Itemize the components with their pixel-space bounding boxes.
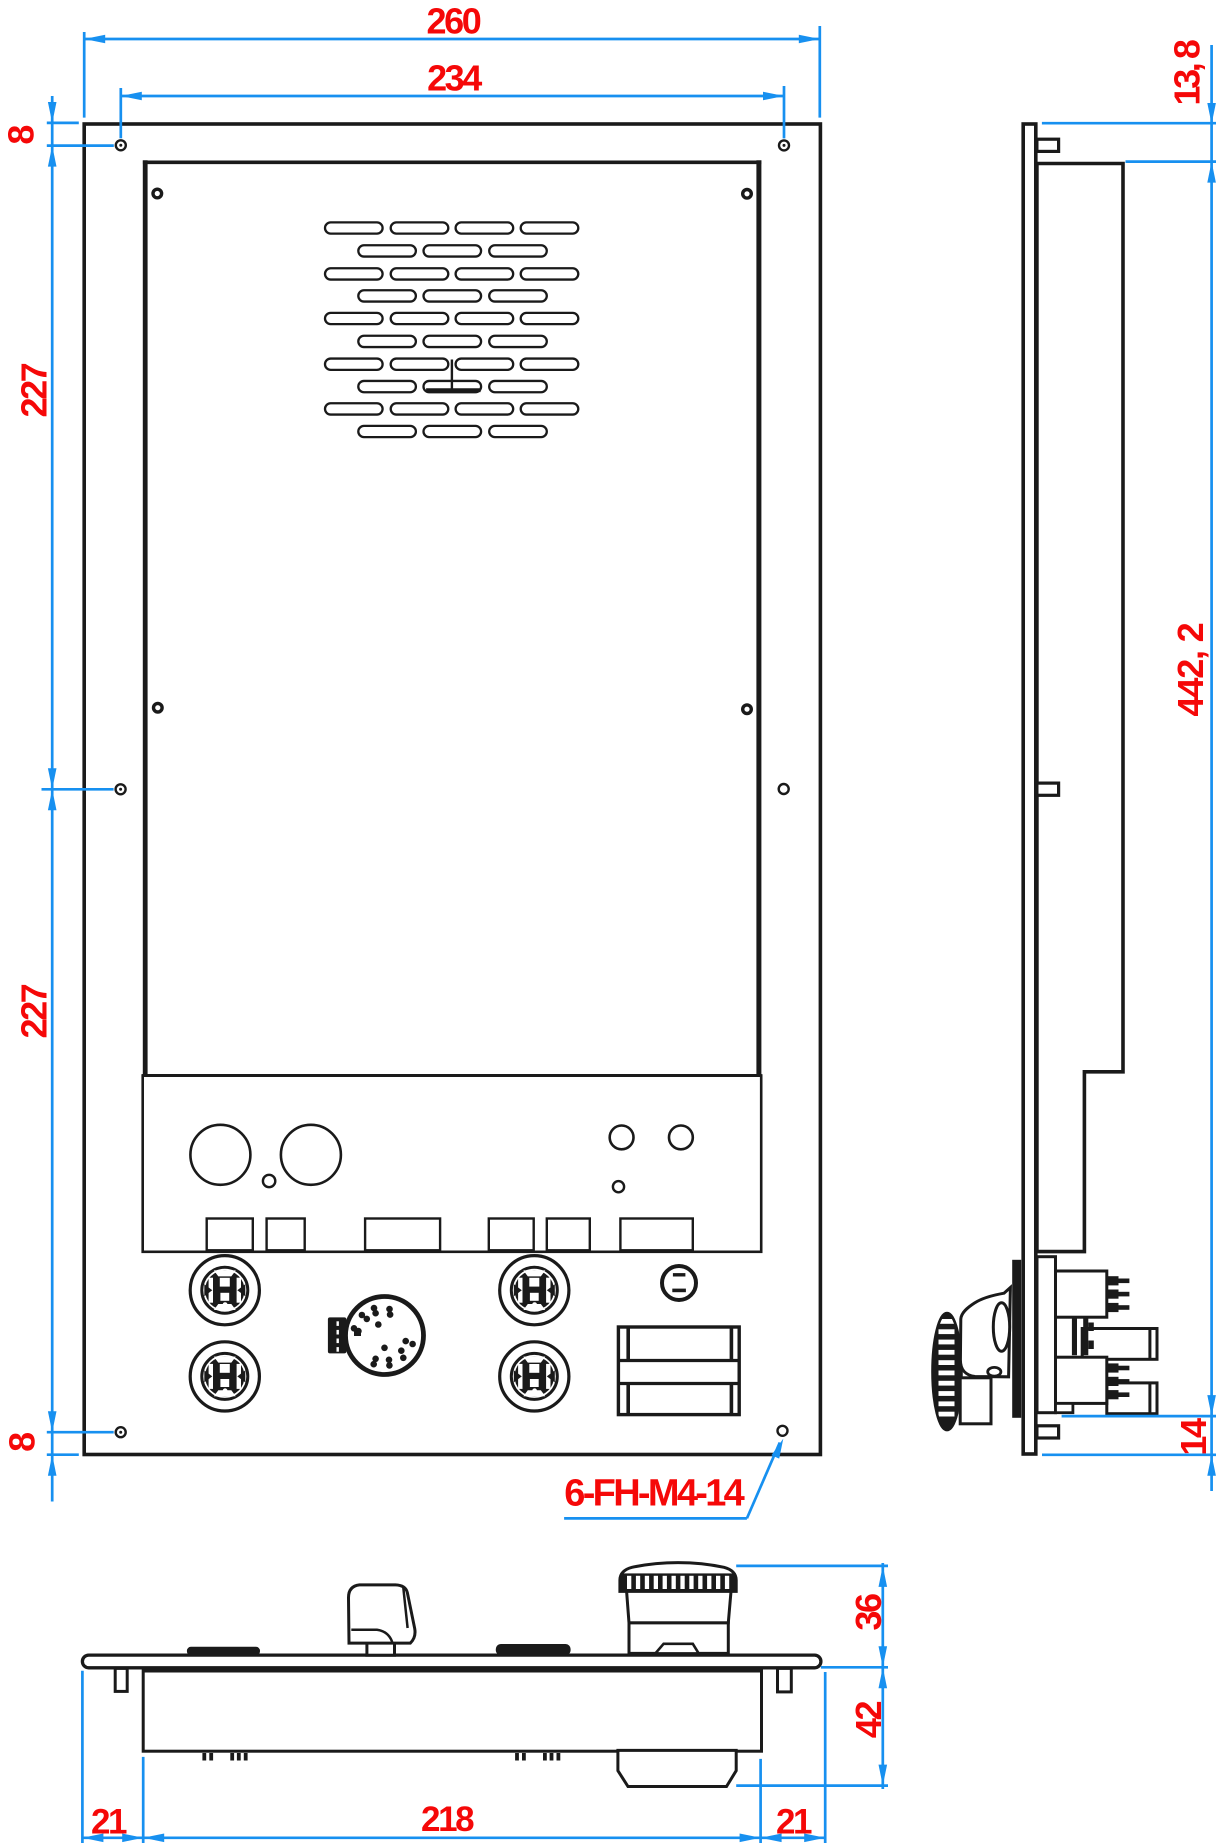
svg-text:8: 8 — [1, 126, 42, 145]
svg-text:6-FH-M4-14: 6-FH-M4-14 — [564, 1473, 744, 1515]
svg-text:14: 14 — [1173, 1418, 1214, 1456]
svg-text:36: 36 — [848, 1594, 889, 1631]
svg-text:234: 234 — [427, 58, 482, 99]
svg-text:21: 21 — [91, 1803, 127, 1842]
svg-text:8: 8 — [2, 1433, 43, 1452]
svg-text:42: 42 — [848, 1702, 889, 1739]
svg-text:218: 218 — [421, 1800, 474, 1839]
svg-text:260: 260 — [426, 1, 480, 42]
svg-text:227: 227 — [14, 984, 55, 1038]
svg-text:442, 2: 442, 2 — [1170, 623, 1211, 716]
svg-text:13, 8: 13, 8 — [1167, 40, 1208, 105]
svg-text:227: 227 — [14, 363, 55, 417]
svg-text:21: 21 — [776, 1803, 812, 1842]
